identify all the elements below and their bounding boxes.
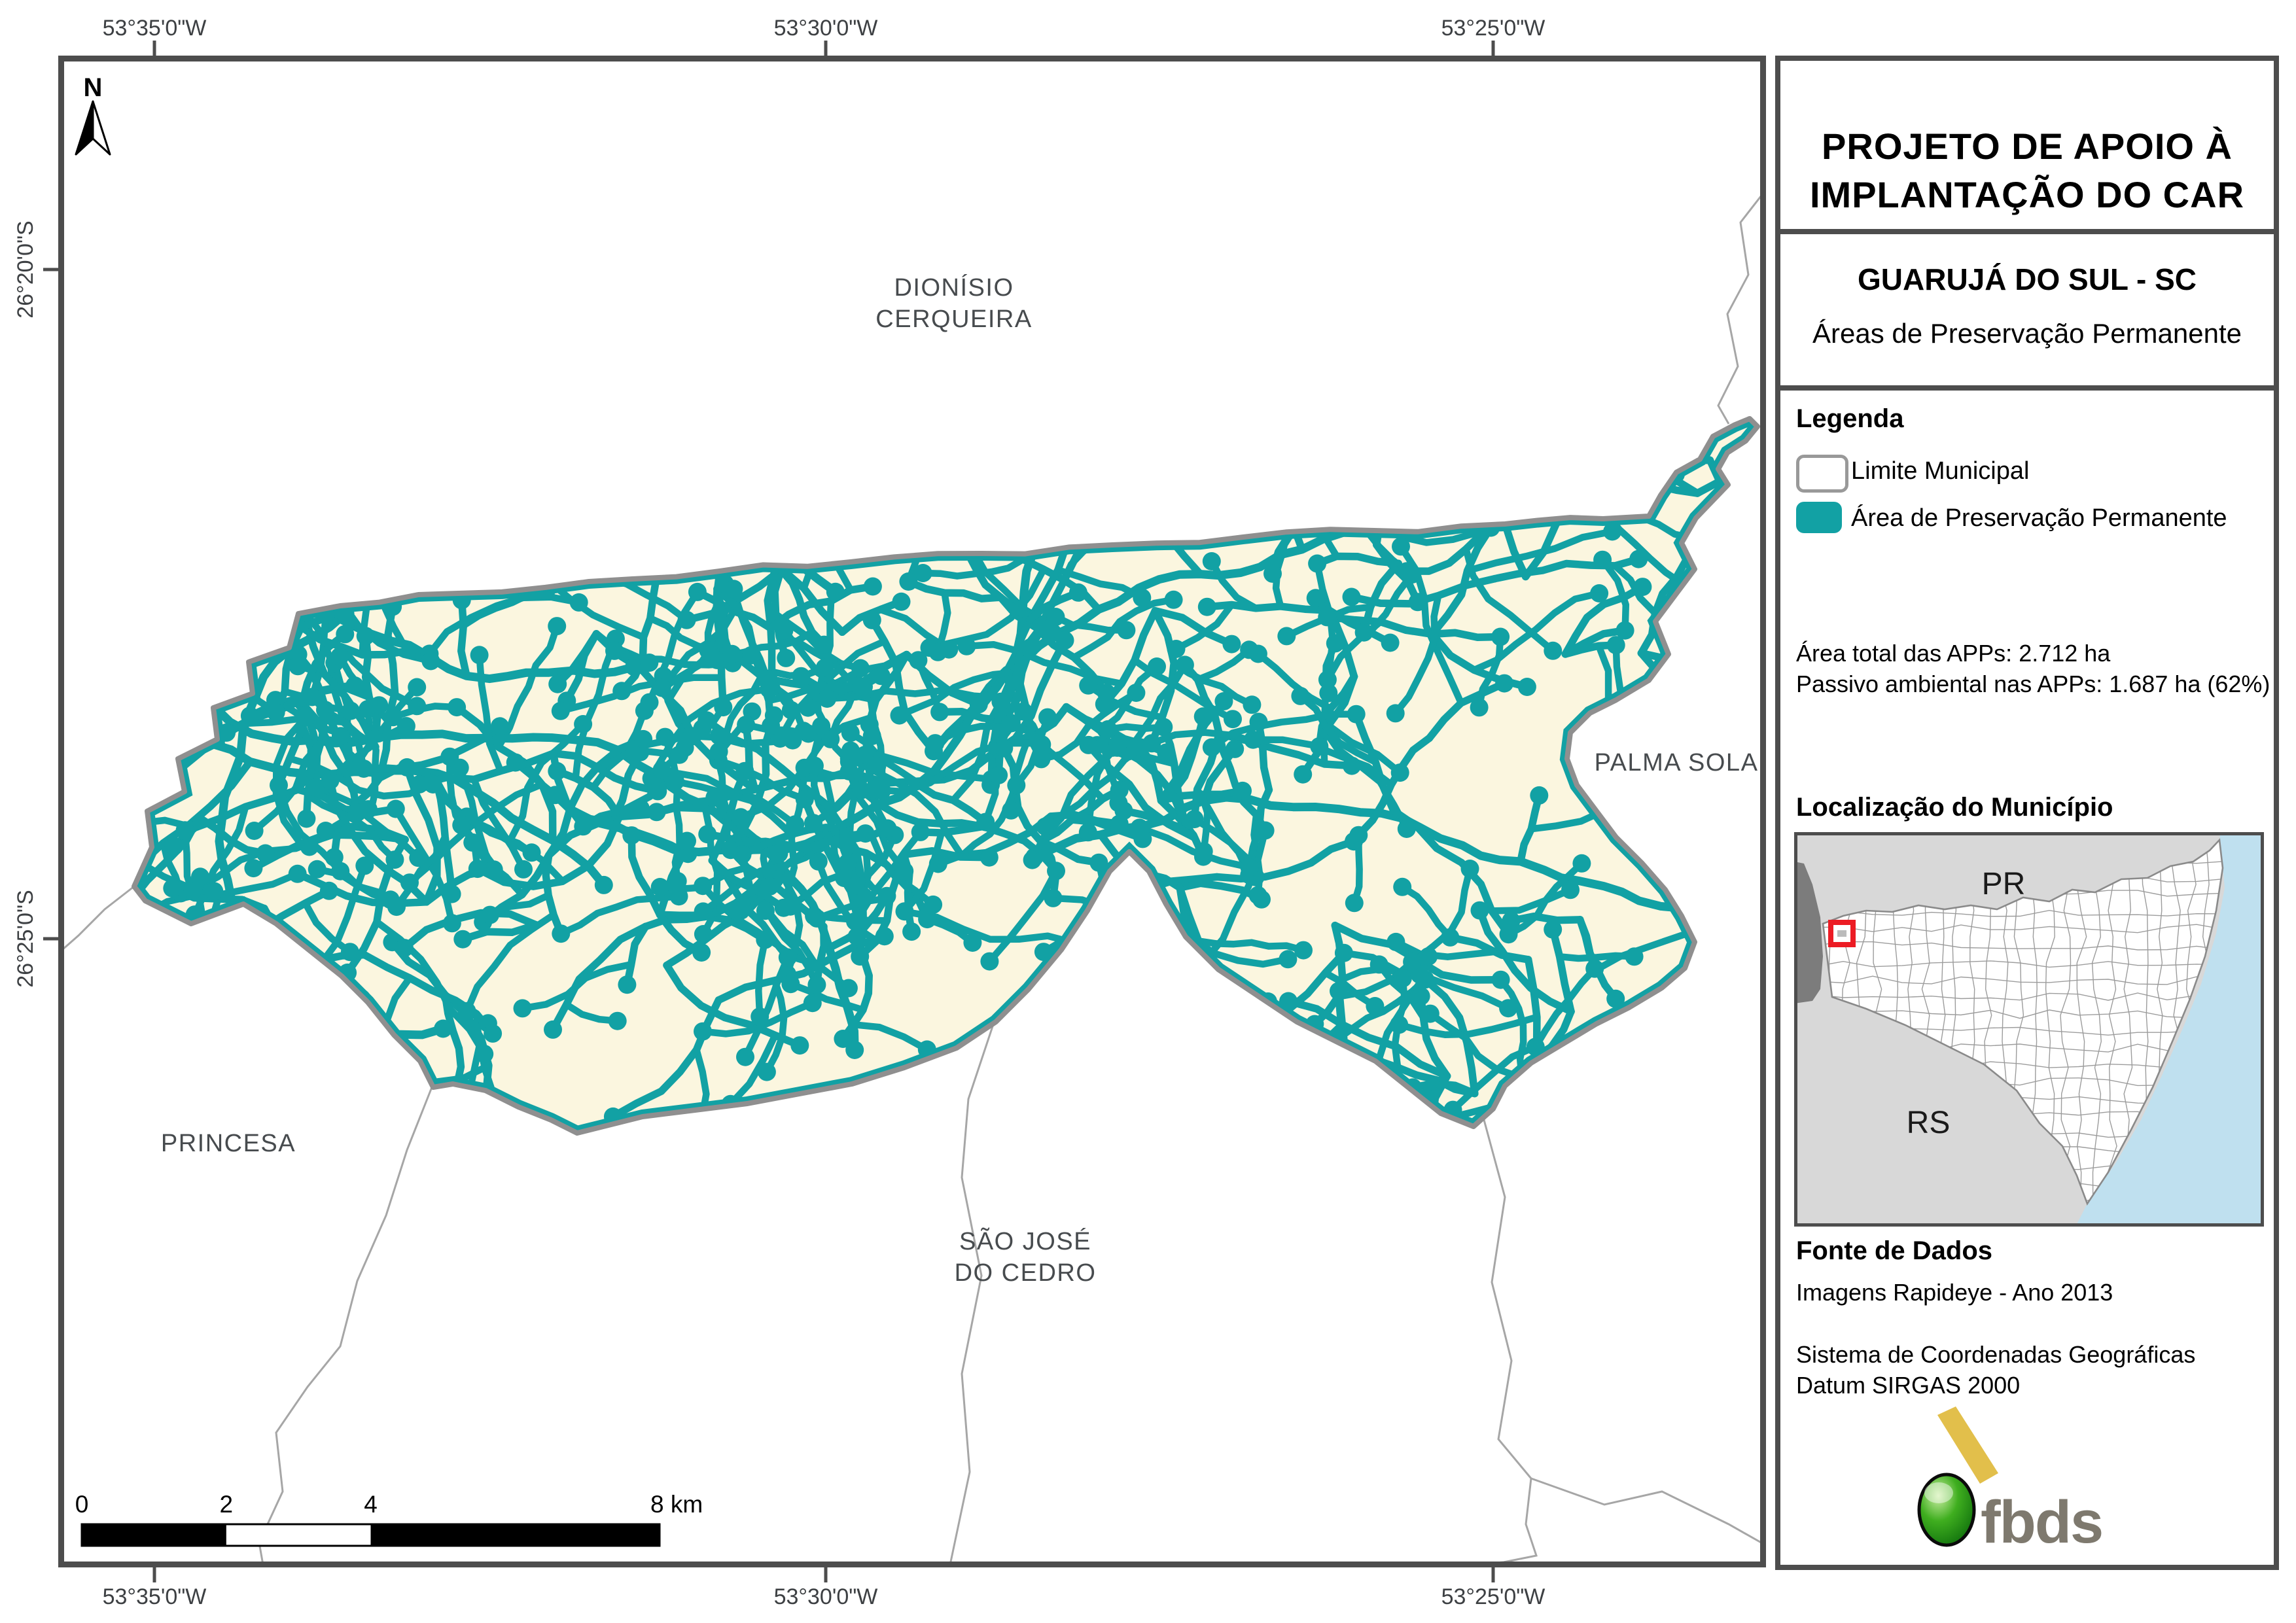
app-statistics: Área total das APPs: 2.712 ha Passivo am… bbox=[1796, 638, 2270, 699]
project-title-line2: IMPLANTAÇÃO DO CAR bbox=[1780, 173, 2274, 216]
map-subtitle: Áreas de Preservação Permanente bbox=[1780, 318, 2274, 349]
scale-label: 2 bbox=[220, 1491, 234, 1518]
scale-label: 8 km bbox=[650, 1491, 703, 1518]
longitude-label-bottom: 53°35'0"W bbox=[103, 1584, 207, 1609]
inset-label-rs: RS bbox=[1907, 1106, 1951, 1140]
place-label-dionisio-cerqueira: DIONÍSIOCERQUEIRA bbox=[875, 273, 1032, 333]
latitude-label: 26°25'0"S bbox=[13, 890, 38, 987]
app-total-area: Área total das APPs: 2.712 ha bbox=[1796, 638, 2270, 669]
longitude-label-top: 53°25'0"W bbox=[1441, 16, 1545, 41]
place-label-palma-sola: PALMA SOLA bbox=[1595, 749, 1759, 777]
logo-yellow-bar bbox=[1937, 1406, 1998, 1484]
legend-title: Legenda bbox=[1796, 404, 1903, 434]
municipality-panel: GUARUJÁ DO SUL - SC Áreas de Preservação… bbox=[1775, 229, 2279, 391]
legend-label: Área de Preservação Permanente bbox=[1851, 504, 2227, 532]
longitude-label-top: 53°30'0"W bbox=[774, 16, 878, 41]
data-source-imagery: Imagens Rapideye - Ano 2013 bbox=[1796, 1279, 2113, 1306]
data-source-title: Fonte de Dados bbox=[1796, 1236, 1992, 1266]
longitude-label-top: 53°35'0"W bbox=[103, 16, 207, 41]
scale-label: 0 bbox=[75, 1491, 89, 1518]
legend-label: Limite Municipal bbox=[1851, 457, 2029, 485]
app-swatch bbox=[1796, 502, 1842, 533]
scale-label: 4 bbox=[364, 1491, 378, 1518]
longitude-label-bottom: 53°25'0"W bbox=[1441, 1584, 1545, 1609]
project-title-line1: PROJETO DE APOIO À bbox=[1780, 125, 2274, 167]
location-title: Localização do Município bbox=[1796, 793, 2113, 822]
logo-sphere-highlight bbox=[1924, 1482, 1953, 1503]
place-label-princesa: PRINCESA bbox=[161, 1130, 296, 1157]
location-inset-map: PRRS bbox=[1794, 832, 2264, 1227]
app-passivo: Passivo ambiental nas APPs: 1.687 ha (62… bbox=[1796, 669, 2270, 699]
inset-label-pr: PR bbox=[1982, 867, 2026, 901]
fbds-logo: fbds bbox=[1881, 1406, 2107, 1554]
latitude-label: 26°20'0"S bbox=[13, 220, 38, 318]
data-source-crs: Sistema de Coordenadas Geográficas bbox=[1796, 1341, 2195, 1369]
municipality-name: GUARUJÁ DO SUL - SC bbox=[1780, 262, 2274, 297]
info-panel: Legenda Limite Municipal Área de Preserv… bbox=[1775, 385, 2279, 1570]
place-label-sao-jose-do-cedro: SÃO JOSÉDO CEDRO bbox=[955, 1227, 1097, 1287]
limite-municipal-swatch bbox=[1796, 455, 1848, 493]
inset-marker-detail bbox=[1837, 930, 1846, 937]
title-panel: PROJETO DE APOIO À IMPLANTAÇÃO DO CAR bbox=[1775, 56, 2279, 234]
north-label: N bbox=[84, 73, 103, 102]
north-arrow: N bbox=[76, 73, 110, 154]
longitude-label-bottom: 53°30'0"W bbox=[774, 1584, 878, 1609]
scale-bar: 0248 km bbox=[75, 1491, 703, 1546]
logo-wordmark: fbds bbox=[1981, 1489, 2102, 1554]
data-source-datum: Datum SIRGAS 2000 bbox=[1796, 1372, 2020, 1399]
